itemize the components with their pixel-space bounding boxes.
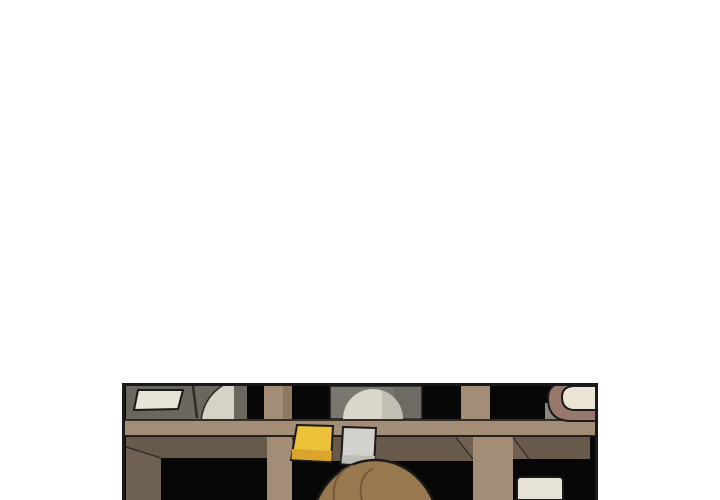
shelf-post-left-upper-shade <box>283 386 292 419</box>
shelf-post-right-upper <box>461 386 490 419</box>
sticky-note-yellow-shade <box>292 449 333 461</box>
shelf-post-right-lower <box>473 437 513 500</box>
shelf-post-left-lower <box>266 437 292 500</box>
paper-sheet-lower-right <box>517 477 563 500</box>
round-dish-inner <box>562 386 598 410</box>
webtoon-page <box>0 0 720 500</box>
framed-paper <box>134 390 183 410</box>
shelf-board-top-edge <box>122 419 598 421</box>
cubby-lower-left-opening <box>161 458 267 500</box>
comic-panel <box>122 383 598 500</box>
comic-panel-illustration <box>122 383 598 500</box>
